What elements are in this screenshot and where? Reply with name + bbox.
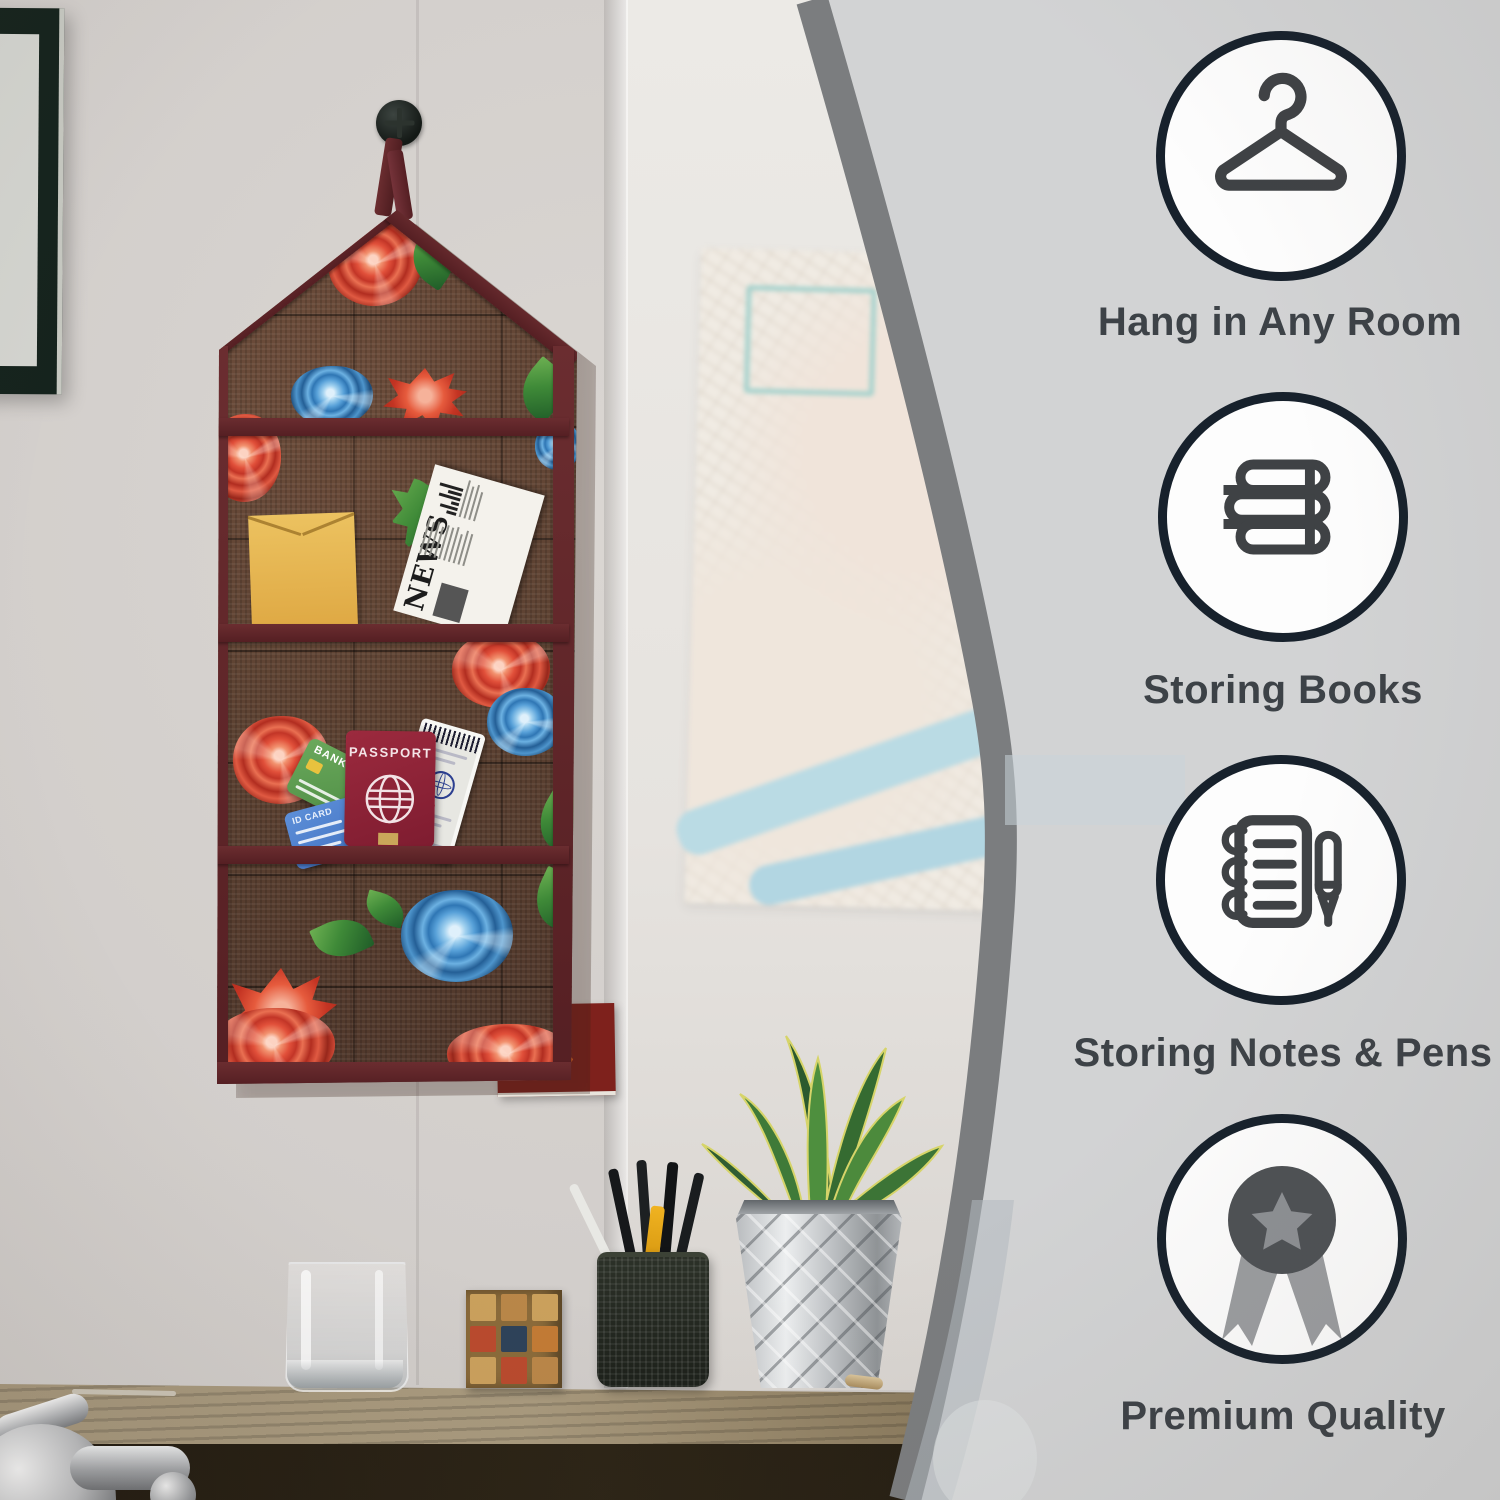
- product-showcase-image: NEWS BANK: [0, 0, 1500, 1500]
- books-icon: [1198, 427, 1368, 587]
- feature-ring-premium: [1157, 1114, 1407, 1364]
- hanger-icon: [1196, 66, 1366, 226]
- feature-label-premium: Premium Quality: [1003, 1394, 1500, 1439]
- feature-label-hang: Hang in Any Room: [1000, 300, 1500, 345]
- disk-reflection: [1005, 755, 1185, 825]
- feature-label-notes: Storing Notes & Pens: [1003, 1031, 1500, 1076]
- notebook-pen-icon: [1194, 790, 1370, 956]
- feature-label-books: Storing Books: [1003, 668, 1500, 713]
